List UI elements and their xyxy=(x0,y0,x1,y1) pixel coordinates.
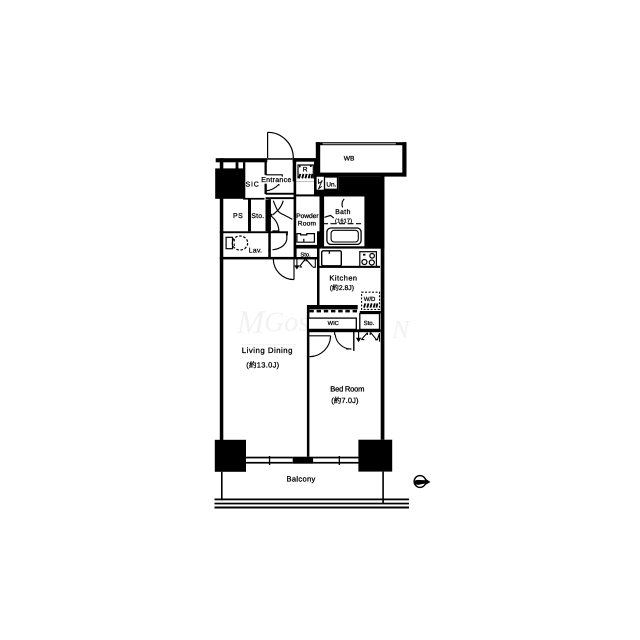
svg-text:(約13.0J): (約13.0J) xyxy=(246,360,279,369)
svg-text:W/D: W/D xyxy=(364,296,376,303)
svg-text:R: R xyxy=(303,166,308,173)
svg-text:M: M xyxy=(236,305,266,341)
svg-text:WIC: WIC xyxy=(328,320,339,327)
svg-text:Entrance: Entrance xyxy=(261,177,291,184)
svg-text:(1617): (1617) xyxy=(335,218,352,225)
svg-text:Lav.: Lav. xyxy=(249,248,263,255)
svg-text:Un.: Un. xyxy=(326,182,336,189)
svg-text:Sto.: Sto. xyxy=(364,320,375,327)
svg-text:Bath: Bath xyxy=(335,209,351,216)
svg-text:PS: PS xyxy=(233,213,243,220)
svg-text:Balcony: Balcony xyxy=(287,474,316,483)
svg-text:Sto.: Sto. xyxy=(251,213,264,220)
svg-text:Bed Room: Bed Room xyxy=(330,385,364,394)
svg-text:(約2.8J): (約2.8J) xyxy=(330,284,354,292)
svg-text:SIC: SIC xyxy=(246,182,260,189)
svg-text:Sto.: Sto. xyxy=(300,251,311,258)
svg-text:Living Dining: Living Dining xyxy=(242,346,293,355)
svg-text:WB: WB xyxy=(344,155,355,162)
svg-text:Room: Room xyxy=(298,220,317,227)
svg-text:(約7.0J): (約7.0J) xyxy=(331,396,359,405)
svg-text:N: N xyxy=(391,315,411,344)
svg-text:Kitchen: Kitchen xyxy=(329,274,357,283)
svg-text:Powder: Powder xyxy=(296,213,319,220)
